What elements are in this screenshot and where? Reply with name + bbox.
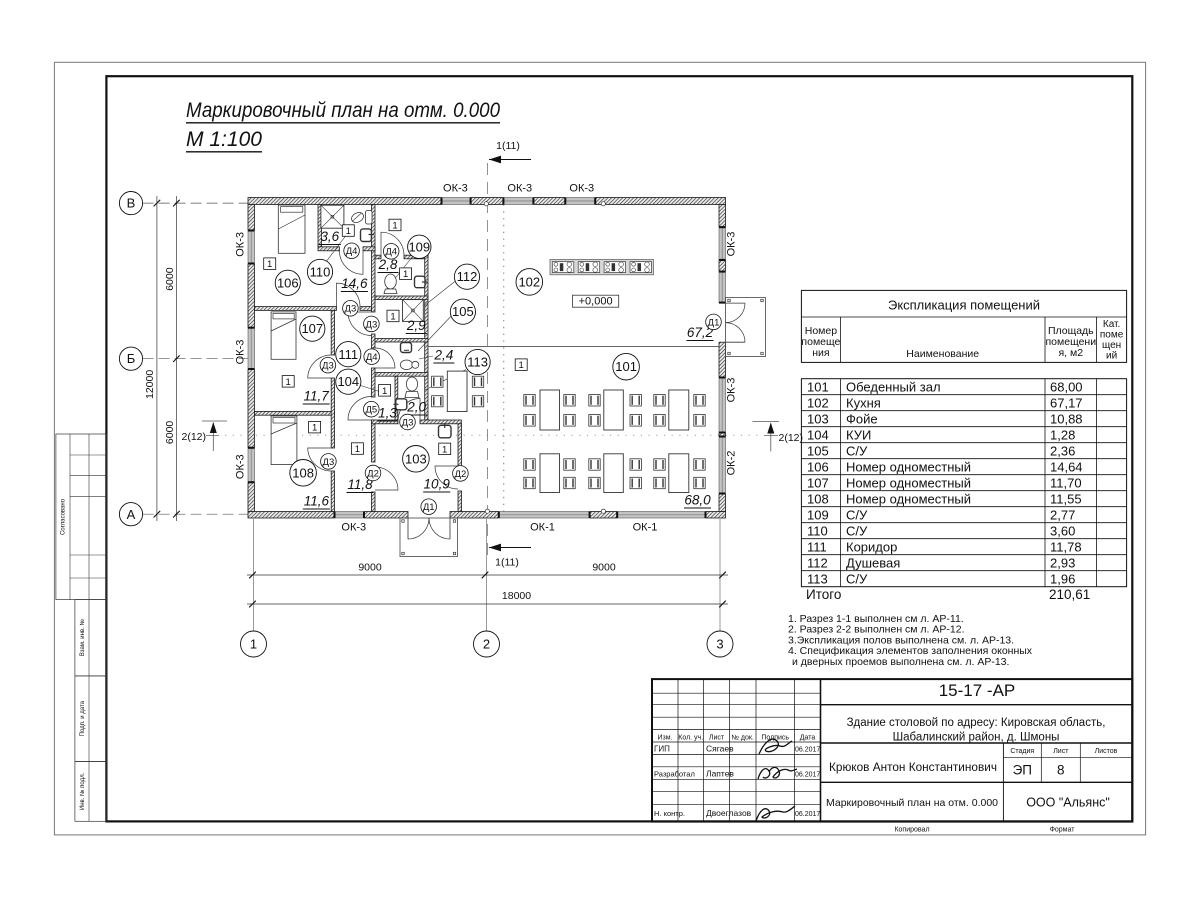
svg-text:104: 104 xyxy=(337,374,359,389)
svg-text:11,7: 11,7 xyxy=(304,389,330,404)
svg-text:1: 1 xyxy=(312,423,317,434)
svg-text:68,0: 68,0 xyxy=(684,493,711,508)
svg-text:1: 1 xyxy=(519,360,524,371)
svg-text:ОК-3: ОК-3 xyxy=(235,232,247,257)
svg-text:2,77: 2,77 xyxy=(1050,507,1075,522)
svg-text:щен: щен xyxy=(1102,340,1121,351)
svg-text:2(12): 2(12) xyxy=(779,432,804,444)
svg-text:ОК-3: ОК-3 xyxy=(569,183,594,195)
svg-text:ОК-3: ОК-3 xyxy=(341,522,366,534)
svg-text:107: 107 xyxy=(301,321,323,336)
svg-text:106: 106 xyxy=(277,275,299,290)
svg-text:3: 3 xyxy=(716,637,723,652)
svg-text:1(11): 1(11) xyxy=(495,557,519,569)
svg-text:2,9: 2,9 xyxy=(406,318,426,333)
svg-text:Д2: Д2 xyxy=(455,469,467,480)
svg-text:Душевая: Душевая xyxy=(846,555,900,570)
svg-text:101: 101 xyxy=(615,359,637,374)
svg-text:ООО "Альянс": ООО "Альянс" xyxy=(1026,796,1110,810)
svg-text:ГИП: ГИП xyxy=(654,745,670,754)
svg-text:Здание столовой по адресу: Кир: Здание столовой по адресу: Кировская обл… xyxy=(847,717,1106,729)
svg-text:Д3: Д3 xyxy=(322,361,334,372)
svg-text:1: 1 xyxy=(250,637,257,652)
svg-text:112: 112 xyxy=(457,269,478,284)
svg-text:1: 1 xyxy=(267,259,272,270)
svg-text:1: 1 xyxy=(390,312,395,323)
svg-text:Д4: Д4 xyxy=(366,352,378,363)
svg-text:108: 108 xyxy=(292,465,314,480)
svg-text:11,6: 11,6 xyxy=(304,494,330,509)
svg-text:10,9: 10,9 xyxy=(424,477,451,492)
svg-text:ОК-3: ОК-3 xyxy=(235,340,247,365)
svg-text:Маркировочный план на отм. 0.: Маркировочный план на отм. 0.000 xyxy=(186,98,500,122)
svg-text:ОК-3: ОК-3 xyxy=(507,183,532,195)
svg-text:107: 107 xyxy=(807,475,829,490)
svg-text:103: 103 xyxy=(405,451,427,466)
svg-text:Шабалинский район, д. Шмоны: Шабалинский район, д. Шмоны xyxy=(893,732,1060,744)
svg-text:Листов: Листов xyxy=(1095,748,1118,755)
svg-text:+0,000: +0,000 xyxy=(579,295,613,307)
svg-text:109: 109 xyxy=(807,507,829,522)
svg-text:3,6: 3,6 xyxy=(320,229,339,244)
svg-text:Дата: Дата xyxy=(800,735,816,742)
svg-text:ОК-3: ОК-3 xyxy=(443,183,468,195)
svg-text:Д3: Д3 xyxy=(323,457,335,468)
svg-text:1: 1 xyxy=(403,269,408,280)
svg-text:Лист: Лист xyxy=(1053,748,1069,755)
svg-text:Стадия: Стадия xyxy=(1010,748,1034,755)
svg-text:1,28: 1,28 xyxy=(1050,427,1075,442)
svg-text:Д1: Д1 xyxy=(708,317,720,328)
svg-text:1: 1 xyxy=(286,377,291,388)
svg-text:Наименование: Наименование xyxy=(906,348,979,360)
svg-text:110: 110 xyxy=(807,523,828,538)
svg-text:6000: 6000 xyxy=(164,267,176,291)
svg-text:ОК-1: ОК-1 xyxy=(633,522,658,534)
svg-text:111: 111 xyxy=(807,539,827,554)
svg-text:06.2017: 06.2017 xyxy=(795,811,820,818)
svg-text:ОК-1: ОК-1 xyxy=(530,522,555,534)
svg-text:1(11): 1(11) xyxy=(496,140,520,152)
svg-text:Д1: Д1 xyxy=(423,502,435,513)
svg-text:Двоеглазов: Двоеглазов xyxy=(706,808,752,818)
svg-text:2: 2 xyxy=(483,637,490,652)
svg-text:ЭП: ЭП xyxy=(1013,763,1032,778)
svg-text:Крюков Антон Константинович: Крюков Антон Константинович xyxy=(829,760,997,774)
svg-text:113: 113 xyxy=(467,355,488,370)
svg-text:Лаптев: Лаптев xyxy=(706,768,734,778)
svg-text:12000: 12000 xyxy=(144,370,156,399)
svg-text:104: 104 xyxy=(807,427,829,442)
svg-text:14,64: 14,64 xyxy=(1050,459,1083,474)
svg-text:15-17 -АР: 15-17 -АР xyxy=(939,681,1016,700)
svg-text:6000: 6000 xyxy=(164,421,176,445)
svg-text:Экспликация помещений: Экспликация помещений xyxy=(888,298,1040,313)
svg-text:Кухня: Кухня xyxy=(846,395,881,410)
svg-text:Номер одноместный: Номер одноместный xyxy=(846,459,971,474)
svg-text:1,3: 1,3 xyxy=(378,406,397,421)
svg-text:Взам. инв. №: Взам. инв. № xyxy=(79,619,86,656)
svg-text:Копировал: Копировал xyxy=(894,827,929,834)
svg-text:Д4: Д4 xyxy=(346,246,358,257)
svg-text:18000: 18000 xyxy=(502,590,531,602)
svg-text:14,6: 14,6 xyxy=(341,276,368,291)
svg-text:06.2017: 06.2017 xyxy=(795,747,820,754)
svg-text:68,00: 68,00 xyxy=(1050,379,1083,394)
svg-text:КУИ: КУИ xyxy=(846,427,871,442)
svg-text:1: 1 xyxy=(442,444,447,455)
svg-text:113: 113 xyxy=(807,571,828,586)
svg-text:102: 102 xyxy=(807,395,829,410)
svg-text:210,61: 210,61 xyxy=(1049,587,1090,602)
svg-text:поме: поме xyxy=(1100,330,1124,341)
svg-text:Д3: Д3 xyxy=(402,417,414,428)
svg-text:9000: 9000 xyxy=(358,562,382,574)
svg-text:Согласовано: Согласовано xyxy=(61,498,67,535)
svg-text:Д2: Д2 xyxy=(367,468,379,479)
svg-text:Н. контр.: Н. контр. xyxy=(654,809,685,818)
svg-text:Лист: Лист xyxy=(709,735,725,742)
svg-text:Д3: Д3 xyxy=(366,319,378,330)
svg-text:Кат.: Кат. xyxy=(1103,319,1120,330)
svg-text:103: 103 xyxy=(807,411,829,426)
svg-text:№ док.: № док. xyxy=(731,735,753,742)
svg-text:8: 8 xyxy=(1057,763,1065,778)
svg-text:Фойе: Фойе xyxy=(846,411,878,426)
svg-text:Коридор: Коридор xyxy=(846,539,897,554)
svg-text:10,88: 10,88 xyxy=(1050,411,1083,426)
svg-text:109: 109 xyxy=(408,239,430,254)
svg-text:11,55: 11,55 xyxy=(1050,491,1082,506)
svg-text:2(12): 2(12) xyxy=(181,431,206,443)
svg-text:102: 102 xyxy=(518,274,540,289)
svg-text:1: 1 xyxy=(346,226,351,237)
svg-text:Кол. уч.: Кол. уч. xyxy=(678,735,703,742)
svg-text:я, м2: я, м2 xyxy=(1059,347,1084,359)
svg-text:Обеденный зал: Обеденный зал xyxy=(846,379,941,394)
svg-text:112: 112 xyxy=(807,555,828,570)
svg-text:Номер одноместный: Номер одноместный xyxy=(846,491,971,506)
svg-text:9000: 9000 xyxy=(592,562,616,574)
svg-text:101: 101 xyxy=(807,379,829,394)
svg-text:1: 1 xyxy=(382,386,387,397)
svg-text:2,93: 2,93 xyxy=(1050,555,1075,570)
svg-text:ОК-3: ОК-3 xyxy=(235,454,247,479)
svg-text:1,96: 1,96 xyxy=(1050,571,1075,586)
svg-text:Инв. № подл.: Инв. № подл. xyxy=(79,772,86,810)
svg-text:С/У: С/У xyxy=(846,507,868,522)
svg-text:06.2017: 06.2017 xyxy=(795,771,820,778)
svg-text:и дверных проемов выполнена с: и дверных проемов выполнена см. л. АР-13… xyxy=(792,656,1009,668)
svg-text:Разработал: Разработал xyxy=(654,769,695,778)
svg-text:Д3: Д3 xyxy=(345,304,357,315)
svg-text:2,36: 2,36 xyxy=(1050,443,1075,458)
svg-text:108: 108 xyxy=(807,491,829,506)
svg-text:М 1:100: М 1:100 xyxy=(186,127,262,151)
svg-text:ОК-2: ОК-2 xyxy=(726,451,738,476)
svg-text:3,60: 3,60 xyxy=(1050,523,1075,538)
svg-text:Итого: Итого xyxy=(806,587,841,602)
svg-text:2,8: 2,8 xyxy=(378,257,398,272)
svg-text:1: 1 xyxy=(355,444,360,455)
svg-text:Формат: Формат xyxy=(1050,827,1076,834)
svg-text:67,17: 67,17 xyxy=(1050,395,1083,410)
svg-text:Д5: Д5 xyxy=(365,405,377,416)
svg-text:Подп. и дата: Подп. и дата xyxy=(80,700,86,736)
svg-text:С/У: С/У xyxy=(846,443,868,458)
svg-text:В: В xyxy=(127,196,136,211)
svg-text:2,0: 2,0 xyxy=(406,400,426,415)
svg-text:Б: Б xyxy=(127,351,136,366)
svg-text:С/У: С/У xyxy=(846,571,868,586)
svg-text:1: 1 xyxy=(392,221,397,232)
svg-text:Изм.: Изм. xyxy=(658,735,673,742)
svg-text:105: 105 xyxy=(807,443,829,458)
svg-text:105: 105 xyxy=(452,304,474,319)
svg-text:ОК-3: ОК-3 xyxy=(726,378,738,403)
svg-text:110: 110 xyxy=(310,264,331,279)
svg-text:А: А xyxy=(127,507,136,522)
svg-text:11,70: 11,70 xyxy=(1050,475,1082,490)
svg-text:ОК-3: ОК-3 xyxy=(726,232,738,257)
svg-text:11,78: 11,78 xyxy=(1050,539,1082,554)
svg-text:ий: ий xyxy=(1106,351,1117,362)
svg-text:С/У: С/У xyxy=(846,523,868,538)
svg-text:Номер одноместный: Номер одноместный xyxy=(846,475,971,490)
svg-text:Маркировочный план на отм. 0.: Маркировочный план на отм. 0.000 xyxy=(826,797,998,809)
svg-text:Сягаев: Сягаев xyxy=(706,744,734,754)
svg-text:106: 106 xyxy=(807,459,829,474)
svg-text:111: 111 xyxy=(338,347,358,362)
svg-text:2,4: 2,4 xyxy=(434,348,454,363)
svg-text:ния: ния xyxy=(812,347,829,359)
